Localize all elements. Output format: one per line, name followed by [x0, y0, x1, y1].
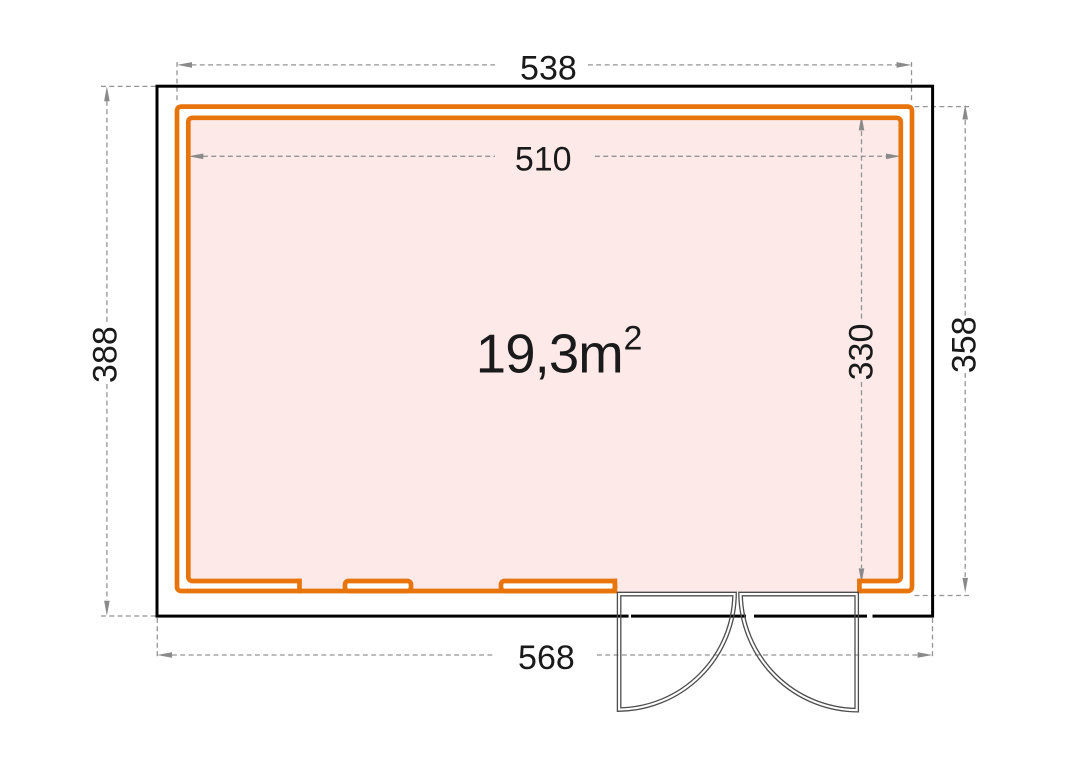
svg-text:388: 388	[87, 326, 125, 383]
svg-text:568: 568	[518, 639, 575, 677]
svg-text:538: 538	[520, 49, 577, 87]
svg-text:358: 358	[946, 316, 984, 373]
svg-text:19,3m: 19,3m	[476, 323, 623, 384]
svg-text:330: 330	[843, 324, 881, 381]
svg-text:510: 510	[515, 141, 572, 179]
svg-text:2: 2	[624, 319, 643, 357]
